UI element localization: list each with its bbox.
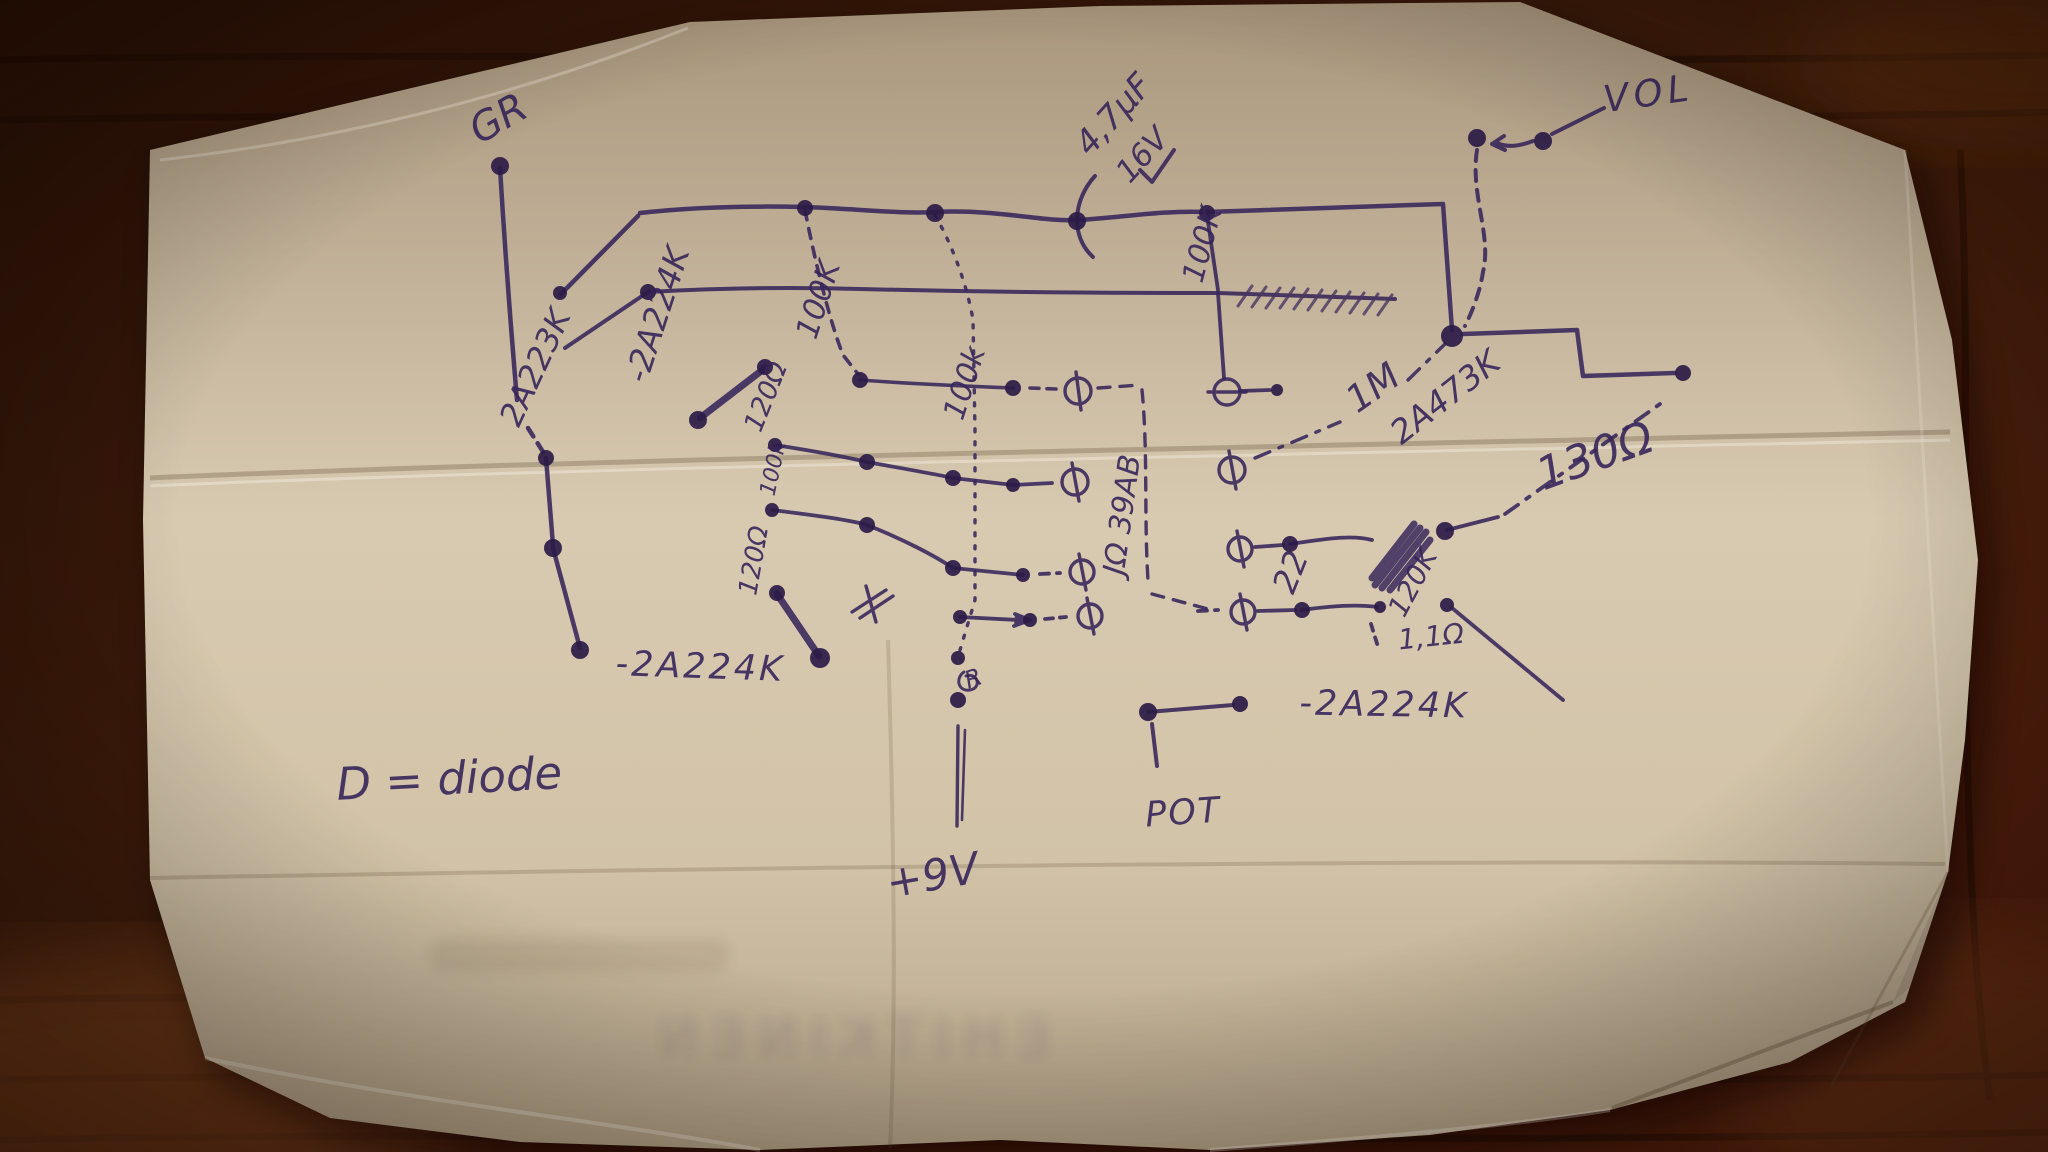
photo-scene: EHITKINEN <box>0 0 2048 1152</box>
schematic-photo: EHITKINEN <box>0 0 2048 1152</box>
photo-vignette <box>0 0 2048 1152</box>
